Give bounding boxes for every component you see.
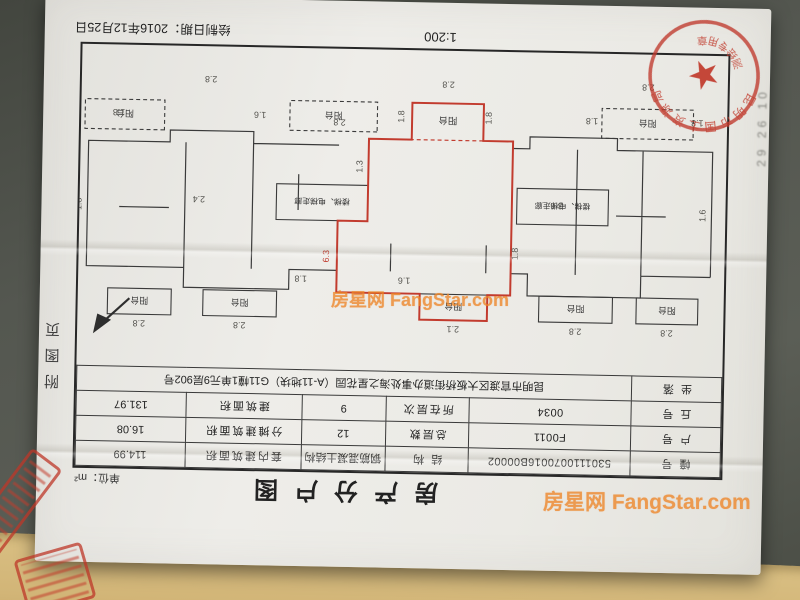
unit-note: 单位：m² — [74, 470, 120, 487]
dim-label: 2.8 — [660, 328, 673, 338]
corridor-label: 楼梯、电梯走廊 — [294, 196, 350, 207]
dim-label: 1.8 — [510, 248, 520, 261]
balcony-label: 阳台 — [130, 295, 148, 306]
dim-label: 1.3 — [354, 160, 364, 173]
building-outline — [86, 128, 713, 299]
watermark: 房星网 FangStar.com — [331, 286, 509, 312]
table-cell-value: 5301110070016B00002 — [468, 448, 630, 476]
dim-label: 1.8 — [76, 197, 83, 210]
dim-label: 1.6 — [697, 209, 707, 222]
dim-label: 1.8 — [484, 112, 494, 125]
dim-label: 1.6 — [398, 275, 411, 285]
table-cell-value: 钢筋混凝土结构 — [301, 445, 385, 472]
draw-date: 绘制日期：2016年12月25日 — [75, 19, 231, 41]
doc-title: 房产分户图 — [138, 472, 439, 513]
balcony-label: 阳台 — [566, 304, 584, 315]
table-cell-label: 结 构 — [385, 446, 469, 473]
table-cell-label: 丘 号 — [631, 401, 722, 428]
dim-label: 1.8 — [586, 116, 599, 126]
scale-label: 1:200 — [424, 29, 457, 45]
floor-plan: 阳台阳台阳台阳台阳台阳台阳台阳台楼梯、电梯走廊楼梯、电梯走廊阳台2.81.81.… — [76, 44, 728, 378]
boundary-frame: 幢 号 5301110070016B00002 结 构 钢筋混凝土结构 套内建筑… — [72, 42, 730, 480]
dim-label: 2.8 — [333, 117, 346, 127]
table-cell-value: 114.99 — [75, 440, 185, 467]
dim-label: 2.8 — [569, 326, 582, 336]
document-content: 房产分户图 单位：m² 幢 号 5301110070016B00002 结 构 … — [49, 5, 757, 564]
dim-label: 2.4 — [193, 194, 206, 204]
balcony-label: 阳台 — [231, 297, 249, 308]
table-cell-label: 户 号 — [630, 426, 721, 453]
table-cell-value: 0034 — [469, 398, 631, 426]
balcony-label: 阳台 — [658, 305, 676, 316]
dim-label: 3.6 — [550, 201, 563, 211]
margin-label: 附图页 — [42, 311, 64, 389]
table-cell-value: 9 — [302, 395, 386, 422]
star-icon: ★ — [683, 50, 726, 99]
survey-table: 幢 号 5301110070016B00002 结 构 钢筋混凝土结构 套内建筑… — [74, 365, 722, 478]
dim-label: 1.8 — [396, 110, 406, 123]
table-cell-value: F0011 — [469, 423, 631, 451]
table-cell-value: 12 — [301, 420, 385, 447]
red-balcony-divider — [412, 140, 484, 141]
table-cell-label: 坐 落 — [631, 376, 722, 403]
dim-label: 2.8 — [442, 80, 455, 90]
dim-label: 2.8 — [205, 74, 218, 84]
dim-label: 1.6 — [254, 110, 267, 120]
dim-label: 2.8 — [233, 320, 246, 330]
dim-label: 2.8 — [133, 318, 146, 328]
north-arrow-icon — [93, 297, 129, 333]
photo-stage: 房产分户图 单位：m² 幢 号 5301110070016B00002 结 构 … — [0, 0, 800, 600]
dim-label: 2.1 — [447, 324, 460, 334]
table-cell-label: 套内建筑面积 — [185, 442, 302, 469]
watermark: 房星网 FangStar.com — [543, 486, 751, 516]
table-cell-value: 131.97 — [76, 390, 186, 417]
table-cell-label: 所在层次 — [385, 396, 469, 423]
table-cell-label: 总层数 — [385, 421, 469, 448]
table-cell-value: 16.08 — [75, 415, 185, 442]
table-cell-label: 建筑面积 — [186, 392, 303, 419]
balcony-label: 阳台 — [438, 114, 457, 126]
floor-plan-svg: 阳台阳台阳台阳台阳台阳台阳台阳台楼梯、电梯走廊楼梯、电梯走廊阳台2.81.81.… — [76, 44, 728, 378]
dim-label: 1.8 — [294, 274, 307, 284]
table-cell-label: 幢 号 — [630, 451, 721, 478]
dim-label: 1.8 — [113, 107, 126, 117]
dim-label: 6.3 — [321, 250, 331, 263]
table-cell-label: 分摊建筑面积 — [185, 417, 302, 444]
